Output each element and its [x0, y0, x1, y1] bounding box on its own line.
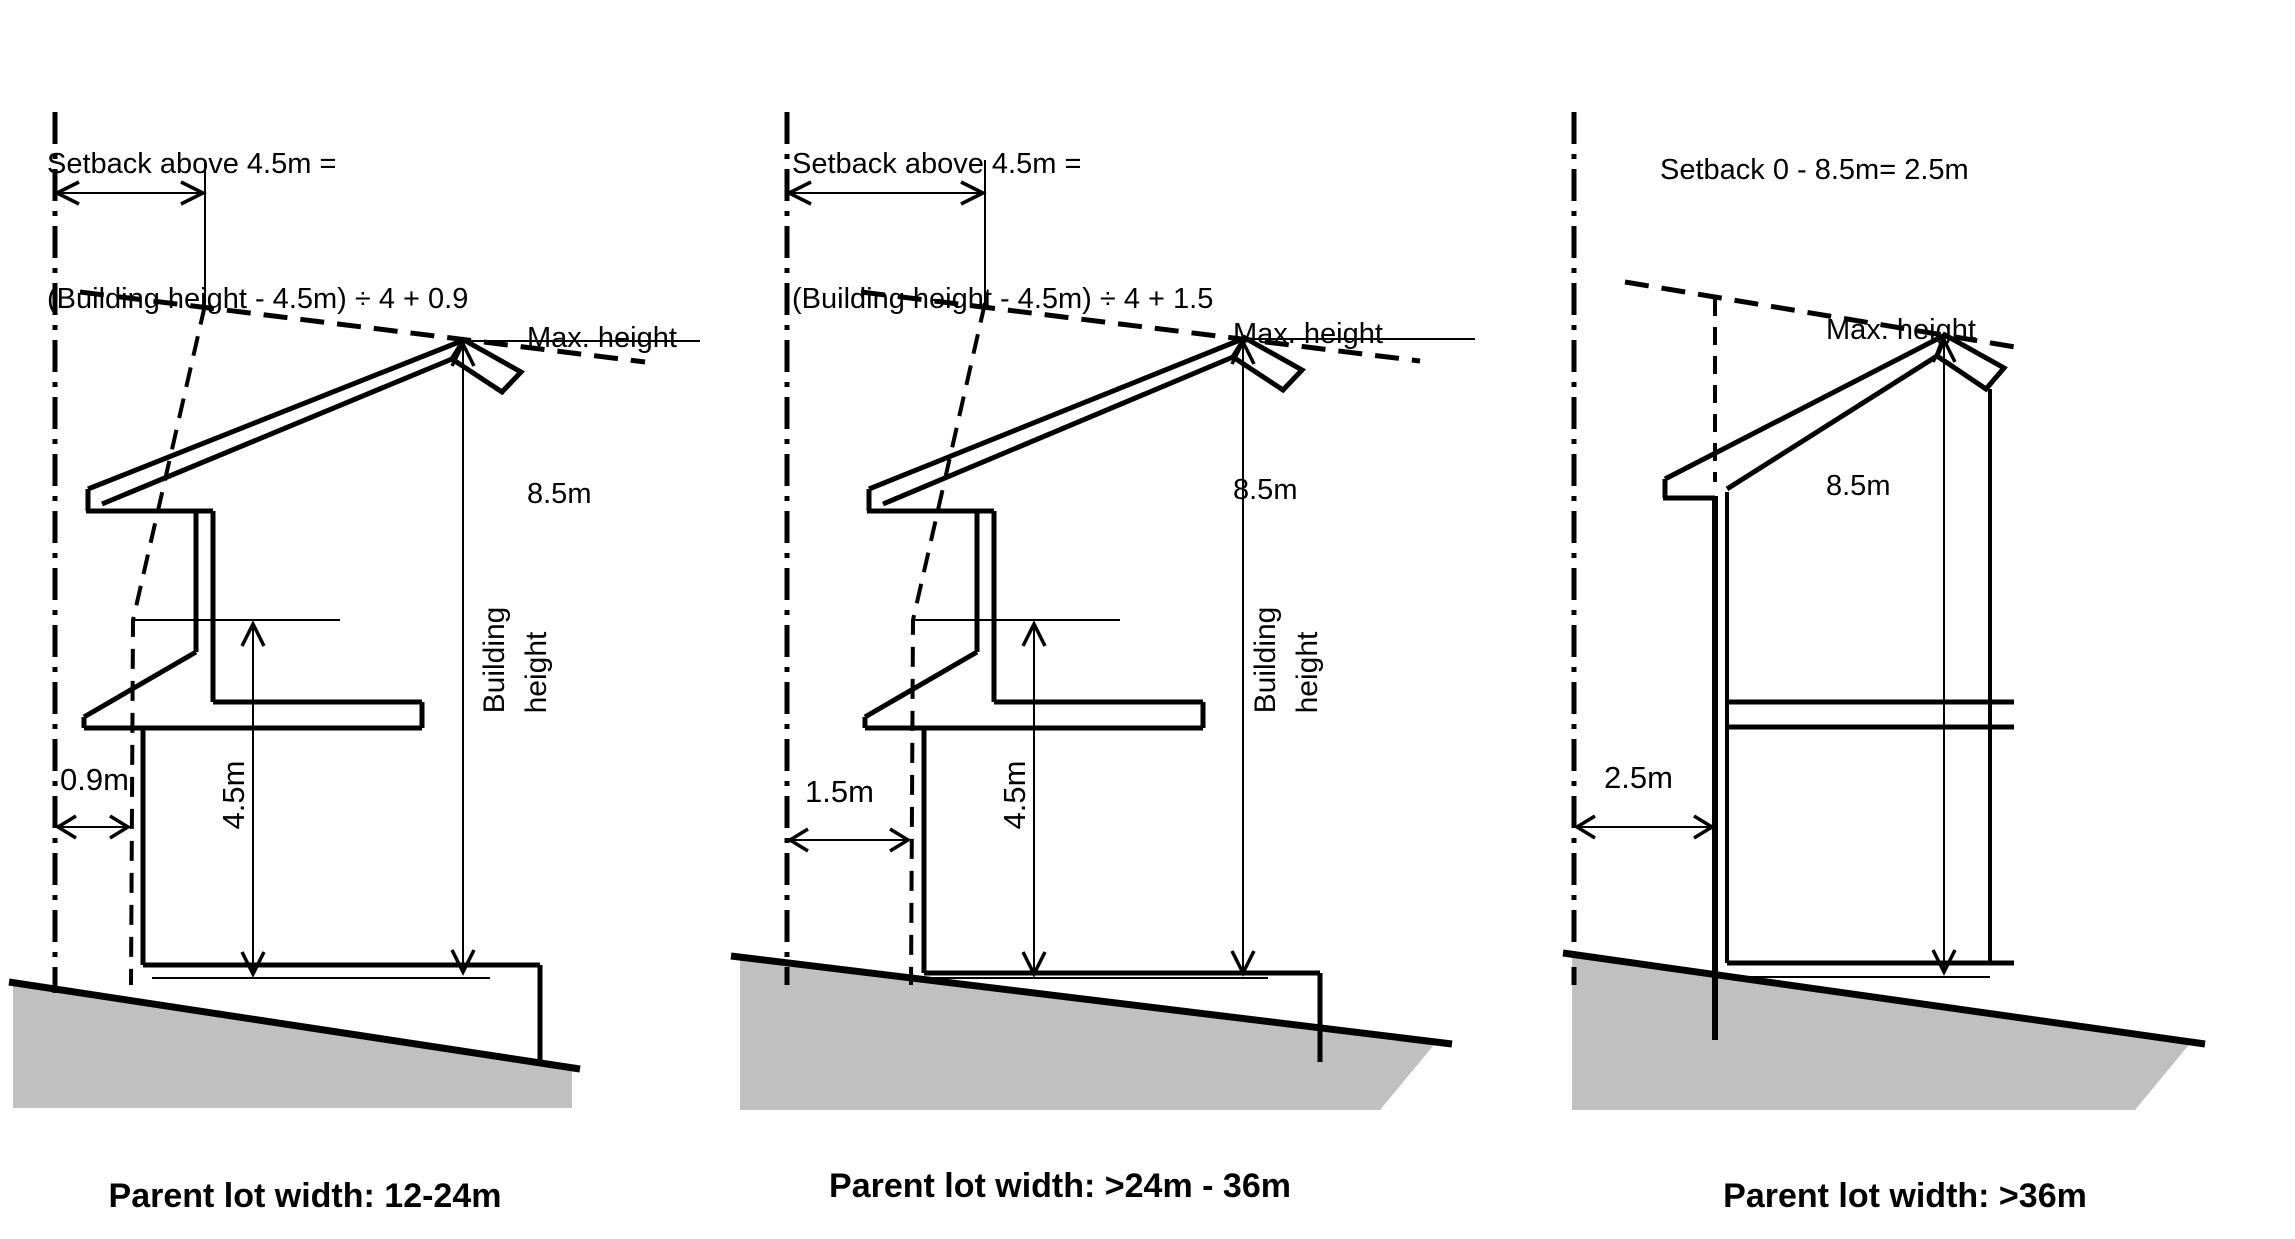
mid-soffit-diagonal — [865, 652, 977, 717]
ground-setback-arrow — [790, 829, 908, 851]
panel-1-level-label: 4.5m — [216, 761, 252, 830]
panel-3-max-height-label: Max. height 8.5m — [1826, 200, 1976, 616]
panel-1-caption: Parent lot width: 12-24m — [109, 1178, 502, 1214]
panel-2-title-line2: (Building height - 4.5m) ÷ 4 + 1.5 — [792, 277, 1213, 322]
ground-setback-arrow — [58, 816, 128, 838]
ground-fill — [13, 985, 572, 1108]
panel-1-building-height-label: Building height — [474, 607, 558, 714]
level-4-5m-dimension — [133, 620, 490, 978]
panel-1-max-height-label: Max. height 8.5m — [527, 208, 677, 624]
panel-3-caption: Parent lot width: >36m — [1723, 1178, 2087, 1214]
ground-setback-arrow — [1577, 816, 1712, 838]
panel-1-title-line1: Setback above 4.5m = — [47, 142, 468, 187]
panel-2-caption: Parent lot width: >24m - 36m — [829, 1168, 1291, 1204]
panel-2-max-height-label: Max. height 8.5m — [1233, 204, 1383, 620]
panel-2-title: Setback above 4.5m = (Building height - … — [792, 52, 1213, 412]
panel-3-ground-setback-label: 2.5m — [1604, 762, 1673, 793]
panel-1-title: Setback above 4.5m = (Building height - … — [47, 52, 468, 412]
mid-soffit-diagonal — [84, 652, 196, 717]
panel-1-title-line2: (Building height - 4.5m) ÷ 4 + 0.9 — [47, 277, 468, 322]
panel-2-ground-setback-label: 1.5m — [805, 776, 874, 807]
panel-2-level-label: 4.5m — [997, 761, 1033, 830]
level-4-5m-dimension — [913, 620, 1268, 978]
panel-2-building-height-label: Building height — [1245, 607, 1329, 714]
panel-2-title-line1: Setback above 4.5m = — [792, 142, 1213, 187]
panel-3-title-line1: Setback 0 - 8.5m= 2.5m — [1660, 148, 1969, 193]
building-height-arrow — [452, 344, 474, 972]
ground-fill — [740, 959, 1438, 1110]
panel-1-ground-setback-label: 0.9m — [60, 764, 129, 795]
ground-fill — [1572, 956, 2192, 1110]
setback-diagram-page: Setback above 4.5m = (Building height - … — [0, 0, 2295, 1239]
